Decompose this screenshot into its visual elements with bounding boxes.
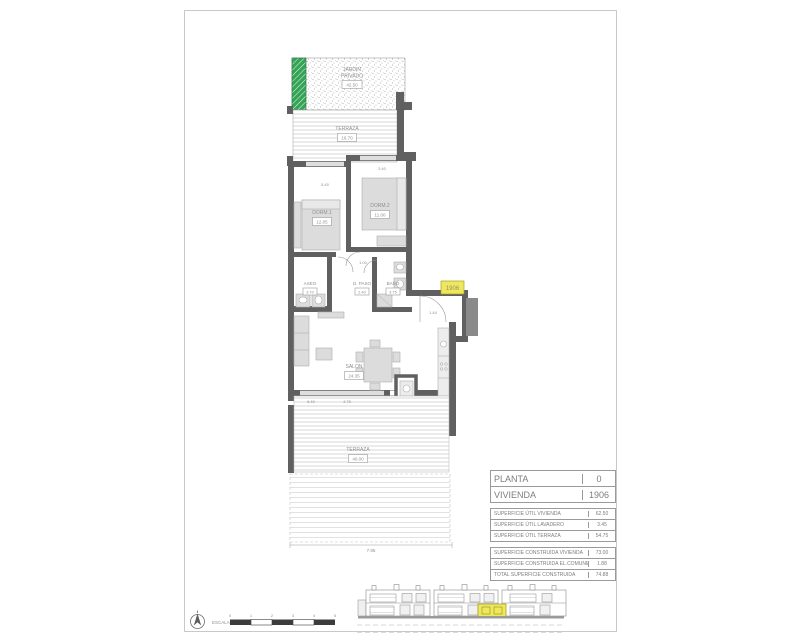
terraza-top-label: TERRAZA bbox=[335, 126, 359, 132]
floor-plan: JARDIN PRIVADO 42.50 TERRAZA 16.70 bbox=[287, 58, 478, 553]
plan-id-table: PLANTA 0 VIVIENDA 1906 bbox=[490, 470, 616, 503]
ground-line bbox=[358, 616, 564, 619]
dim-3: 1.00 bbox=[359, 260, 368, 265]
jardin-label-2: PRIVADO bbox=[341, 74, 363, 80]
dorm2-value: 11.00 bbox=[375, 213, 386, 218]
bano-value: 3.75 bbox=[389, 290, 398, 295]
const-total-value: 74.88 bbox=[588, 572, 615, 578]
util-terraza-value: 54.75 bbox=[588, 533, 615, 539]
scale-tick-1: 1 bbox=[250, 613, 253, 618]
util-lavadero-value: 3.45 bbox=[588, 522, 615, 528]
table-row: SUPERFICIE ÚTIL TERRAZA 54.75 bbox=[491, 530, 615, 541]
coffee-table bbox=[316, 348, 332, 360]
terraza-top-value: 16.70 bbox=[341, 136, 353, 141]
jardin-privado-area: JARDIN PRIVADO 42.50 bbox=[292, 58, 405, 110]
const-vivienda-label: SUPERFICIE CONSTRUIDA VIVIENDA bbox=[491, 549, 588, 557]
salon-label: SALON bbox=[346, 364, 363, 370]
table-row: SUPERFICIE ÚTIL LAVADERO 3.45 bbox=[491, 519, 615, 530]
table-row: SUPERFICIE CONSTRUIDA VIVIENDA 73.00 bbox=[491, 548, 615, 558]
bano-label: BAÑO bbox=[387, 280, 400, 286]
table-row: SUPERFICIE CONSTRUIDA EL.COMUNES 1.88 bbox=[491, 558, 615, 569]
desk bbox=[377, 236, 406, 246]
scale-tick-4: 4 bbox=[313, 613, 316, 618]
plan-sheet: JARDIN PRIVADO 42.50 TERRAZA 16.70 bbox=[0, 0, 800, 640]
dim-2: 3.40 bbox=[378, 166, 387, 171]
dining-table bbox=[364, 348, 392, 382]
dim-total-width: 7.95 bbox=[367, 548, 376, 553]
scale-bar-group: ESCALA : 0 1 2 3 4 5 bbox=[191, 611, 337, 629]
const-total-label: TOTAL SUPERFICIE CONSTRUIDA bbox=[491, 571, 588, 579]
drawing-canvas: JARDIN PRIVADO 42.50 TERRAZA 16.70 bbox=[0, 0, 800, 640]
terrace-bottom-area: TERRAZA 40.00 bbox=[294, 396, 449, 472]
vivienda-value: 1906 bbox=[582, 490, 615, 500]
party-wall bbox=[466, 298, 478, 336]
kitchen-counter bbox=[438, 328, 449, 396]
util-lavadero-label: SUPERFICIE ÚTIL LAVADERO bbox=[491, 521, 588, 529]
scale-tick-3: 3 bbox=[292, 613, 295, 618]
elevation-blocks bbox=[366, 585, 566, 617]
scale-tick-0: 0 bbox=[229, 613, 232, 618]
table-row: PLANTA 0 bbox=[491, 471, 615, 486]
terraza-bottom-label: TERRAZA bbox=[346, 447, 370, 453]
paso-value: 2.40 bbox=[358, 290, 367, 295]
jardin-area-value: 42.50 bbox=[346, 83, 358, 88]
paso-label: D. PASO bbox=[353, 281, 371, 286]
aseo-label: ASEO bbox=[304, 281, 317, 286]
util-vivienda-value: 62.50 bbox=[588, 511, 615, 517]
scale-tick-5: 5 bbox=[334, 613, 337, 618]
terrace-top-area: TERRAZA 16.70 bbox=[293, 110, 397, 162]
dorm2-label: DORM.2 bbox=[370, 203, 390, 209]
dim-4: 1.44 bbox=[429, 310, 438, 315]
dim-6: 4.75 bbox=[343, 399, 352, 404]
planta-label: PLANTA bbox=[491, 473, 582, 485]
const-comunes-label: SUPERFICIE CONSTRUIDA EL.COMUNES bbox=[491, 560, 588, 568]
scale-label: ESCALA : bbox=[212, 620, 232, 625]
jardin-label-1: JARDIN bbox=[343, 67, 361, 73]
table-row: VIVIENDA 1906 bbox=[491, 486, 615, 502]
unit-tag-number: 1906 bbox=[446, 286, 460, 292]
built-surface-table: SUPERFICIE CONSTRUIDA VIVIENDA 73.00 SUP… bbox=[490, 547, 616, 581]
scale-tick-2: 2 bbox=[271, 613, 274, 618]
dim-1: 5.45 bbox=[321, 182, 330, 187]
dorm1-value: 12.05 bbox=[316, 220, 328, 225]
vivienda-label: VIVIENDA bbox=[491, 489, 582, 501]
aseo-value: 3.70 bbox=[306, 290, 315, 295]
title-block: PLANTA 0 VIVIENDA 1906 SUPERFICIE ÚTIL V… bbox=[490, 470, 616, 581]
util-terraza-label: SUPERFICIE ÚTIL TERRAZA bbox=[491, 532, 588, 540]
const-vivienda-value: 73.00 bbox=[588, 550, 615, 556]
table-row: SUPERFICIE ÚTIL VIVIENDA 62.50 bbox=[491, 509, 615, 519]
sofa bbox=[294, 316, 309, 366]
decking-area bbox=[290, 474, 450, 542]
planta-value: 0 bbox=[582, 474, 615, 484]
salon-value: 24.35 bbox=[348, 374, 360, 379]
dorm1-label: DORM.1 bbox=[312, 210, 332, 216]
unit-tag: 1906 bbox=[441, 281, 464, 294]
scale-bar bbox=[230, 620, 335, 626]
dim-5: 6.40 bbox=[307, 399, 316, 404]
highlighted-unit bbox=[478, 604, 506, 617]
building-elevation bbox=[357, 585, 566, 633]
const-comunes-value: 1.88 bbox=[588, 561, 615, 567]
tv-bench bbox=[318, 312, 344, 318]
green-hedge bbox=[292, 58, 306, 110]
util-vivienda-label: SUPERFICIE ÚTIL VIVIENDA bbox=[491, 510, 588, 518]
scale-ticks: 0 1 2 3 4 5 bbox=[229, 613, 337, 618]
wardrobe bbox=[294, 202, 301, 248]
table-row: TOTAL SUPERFICIE CONSTRUIDA 74.88 bbox=[491, 569, 615, 580]
useful-surface-table: SUPERFICIE ÚTIL VIVIENDA 62.50 SUPERFICI… bbox=[490, 508, 616, 542]
terraza-bottom-value: 40.00 bbox=[352, 457, 364, 462]
